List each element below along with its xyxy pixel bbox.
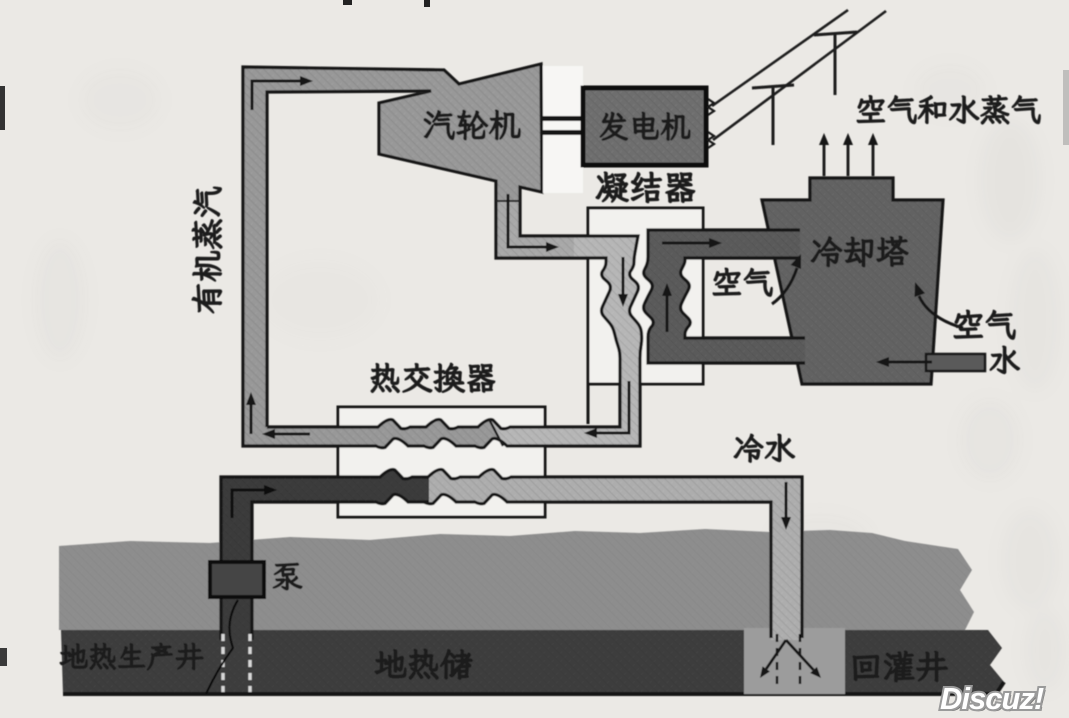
svg-text:Discuz!: Discuz! [940, 681, 1044, 716]
